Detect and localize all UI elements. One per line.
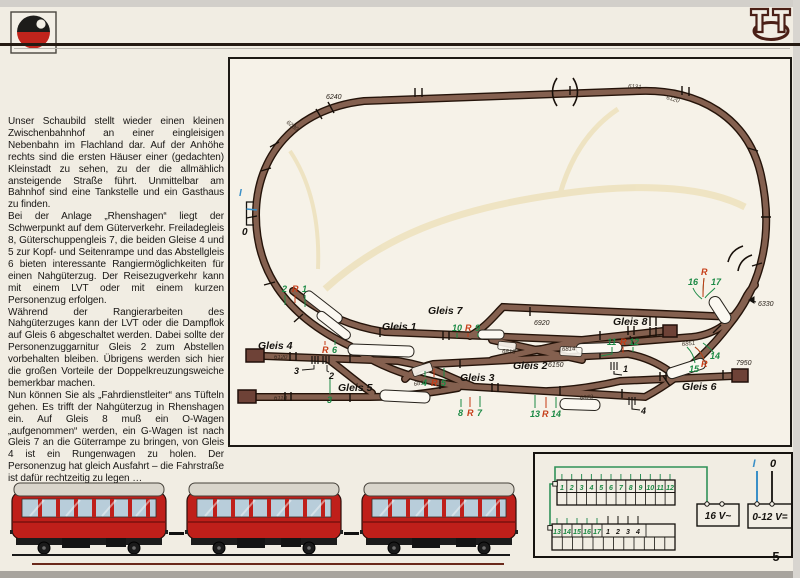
ac-supply: 16 V~ [697,502,739,526]
switch-12: 12 [629,337,639,347]
buffer-gleis8 [663,325,677,337]
tt-logo-icon [746,5,796,43]
railcar-3 [360,483,518,554]
switch-group-16-17: 16 R 17 [688,267,722,299]
switch-14: 14 [551,409,561,419]
uncoupler-button-4: 4 [635,529,640,536]
coupler [169,532,184,535]
switch-10: 10 [452,323,462,333]
paragraph-3: Während der Rangierarbeiten des Nahgüter… [8,307,224,390]
railbus-illustration [8,478,520,574]
switch-7: 7 [477,408,483,418]
header-rule-shadow [14,48,790,49]
coupler [344,532,359,535]
switch-16: 16 [688,277,699,287]
button-15: 15 [573,529,581,536]
switch-button-strip-1: 1 2 3 4 5 6 7 8 9 10 11 12 [553,474,675,505]
platform [380,390,431,404]
switch-r: R [467,408,474,418]
scan-edge-right [793,0,800,578]
part-6131: 6131 [628,84,642,91]
button-4: 4 [588,485,593,492]
button-7: 7 [619,485,624,492]
switch-r: R [620,337,627,347]
button-9: 9 [639,485,643,492]
button-16: 16 [583,529,591,536]
switch-r: R [322,345,329,355]
switch-r: R [292,284,299,294]
paragraph-4: Nun können Sie als „Fahrdienstleiter“ an… [8,390,224,485]
control-panel-box: 1 2 3 4 5 6 7 8 9 10 11 12 [533,452,793,558]
track-plan-svg: I 0 Gleis 1 Gleis 2 Gleis 3 Gleis 4 Glei… [230,59,790,445]
switch-group-8-7: 8 R 7 [458,396,483,418]
switch-9: 9 [475,323,480,333]
part-gleis4: 6120 [274,355,288,361]
switch-r: R [701,359,708,369]
button-1: 1 [560,485,564,492]
bridge-icon [553,78,753,271]
button-3: 3 [580,485,584,492]
button-10: 10 [646,485,654,492]
part-6814-right: 6814 [562,347,576,353]
gleis-5-label: Gleis 5 [338,382,373,394]
panel-i-label: I [752,458,756,470]
buffer-gleis6 [732,369,748,382]
switch-6: 6 [332,345,338,355]
switch-15: 15 [689,364,700,374]
button-5: 5 [599,485,603,492]
uncoupler-3-label: 3 [294,366,299,376]
green-wire-left [550,484,555,527]
switch-2: 2 [281,284,287,294]
switch-14: 14 [710,351,720,361]
uncoupler-button-3: 3 [626,529,630,536]
button-17: 17 [593,529,602,536]
article-text: Unser Schaubild stellt wieder einen klei… [8,116,224,485]
uncoupler-button-2: 2 [615,529,620,536]
part-6150: 6150 [548,362,564,369]
button-6: 6 [609,485,613,492]
switch-4: 4 [421,378,427,388]
switch-17: 17 [711,277,722,287]
button-8: 8 [629,485,633,492]
paragraph-2: Bei der Anlage „Rhenshagen“ liegt der Sc… [8,211,224,306]
gleis-3-label: Gleis 3 [460,372,495,384]
dc-supply: I 0 0-12 V= [748,458,791,528]
switch-13: 13 [530,409,540,419]
platform [348,344,414,357]
switch-button-strip-2: 13 14 15 16 17 1 2 3 4 [548,516,675,550]
part-6813: 6813 [502,349,516,356]
paragraph-1: Unser Schaubild stellt wieder einen klei… [8,116,224,211]
switch-3: 3 [327,395,332,405]
switch-8: 8 [458,408,463,418]
wire-ticks-green [557,518,597,524]
feed-i-label: I [239,188,242,199]
gleis-1-label: Gleis 1 [382,321,417,333]
button-12: 12 [666,485,674,492]
control-panel-svg: 1 2 3 4 5 6 7 8 9 10 11 12 [535,454,791,556]
gleis-4-label: Gleis 4 [258,340,293,352]
strip-connector [548,526,553,531]
uncoupler-1-label: 1 [623,364,628,374]
button-14: 14 [563,529,571,536]
page-number: 5 [764,549,788,564]
scenery-road [290,109,745,289]
header-rule [0,43,800,46]
gleis-6-label: Gleis 6 [682,381,717,393]
gleis-7-label: Gleis 7 [428,305,464,317]
switch-r: R [431,378,438,388]
switch-11: 11 [607,337,616,347]
uncoupler-1: 1 [611,362,628,375]
part-6240: 6240 [326,94,342,101]
gleis-8-label: Gleis 8 [613,316,648,328]
tt-scale-logo [746,5,796,43]
wire-ticks [562,474,670,480]
platform [707,294,733,326]
switch-group-13-14: 13 R 14 [530,395,561,419]
feed-zero-label: 0 [242,227,248,238]
switch-1: 1 [302,284,307,294]
button-2: 2 [569,485,574,492]
dc-label: 0-12 V= [752,512,787,523]
part-6920: 6920 [534,320,550,327]
button-11: 11 [657,485,664,492]
railbus-svg [8,478,520,574]
gleis-2-label: Gleis 2 [513,360,548,372]
book-page: Unser Schaubild stellt wieder einen klei… [0,0,800,578]
uncoupler-4-label: 4 [640,406,646,416]
strip-connector [553,482,558,487]
railcar-2 [185,483,343,554]
part-6330: 6330 [758,301,774,308]
panel-zero-label: 0 [770,458,777,470]
buffer-gleis5 [238,390,256,403]
uncoupler-2-label: 2 [328,371,334,381]
switch-r: R [701,267,708,277]
button-13: 13 [553,529,561,536]
switch-r: R [542,409,549,419]
part-6851: 6851 [682,341,696,348]
switch-r: R [465,323,472,333]
scan-edge-top [0,0,800,7]
part-gleis5: 6110 [274,396,288,402]
railcar-1 [10,483,168,554]
ac-label: 16 V~ [705,511,732,522]
track-plan-box: I 0 Gleis 1 Gleis 2 Gleis 3 Gleis 4 Glei… [228,57,792,447]
platform [478,330,504,339]
part-7950: 7950 [736,360,752,367]
uncoupler-button-1: 1 [606,529,610,536]
wire-ticks-black [608,516,638,524]
